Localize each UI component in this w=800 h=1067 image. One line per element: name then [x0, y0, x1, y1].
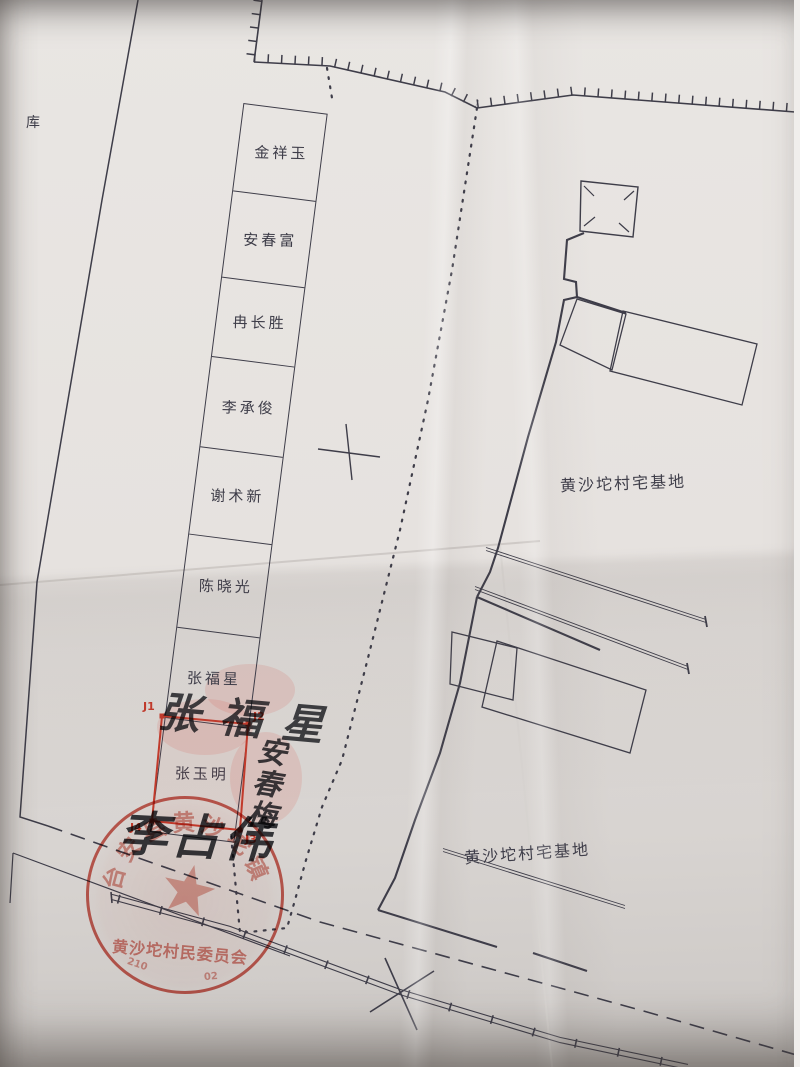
plot-map-photo: 金祥玉 安春富 冉长胜 李承俊 谢术新 陈晓光 张福星 张玉明 J1 J2 J3… — [0, 0, 800, 1067]
handwritten-signature: 李占伟 — [118, 794, 277, 872]
marker-label-j1: J1 — [143, 700, 155, 713]
seal-serial-right: 02 — [203, 971, 218, 983]
photo-edge — [794, 0, 800, 1067]
